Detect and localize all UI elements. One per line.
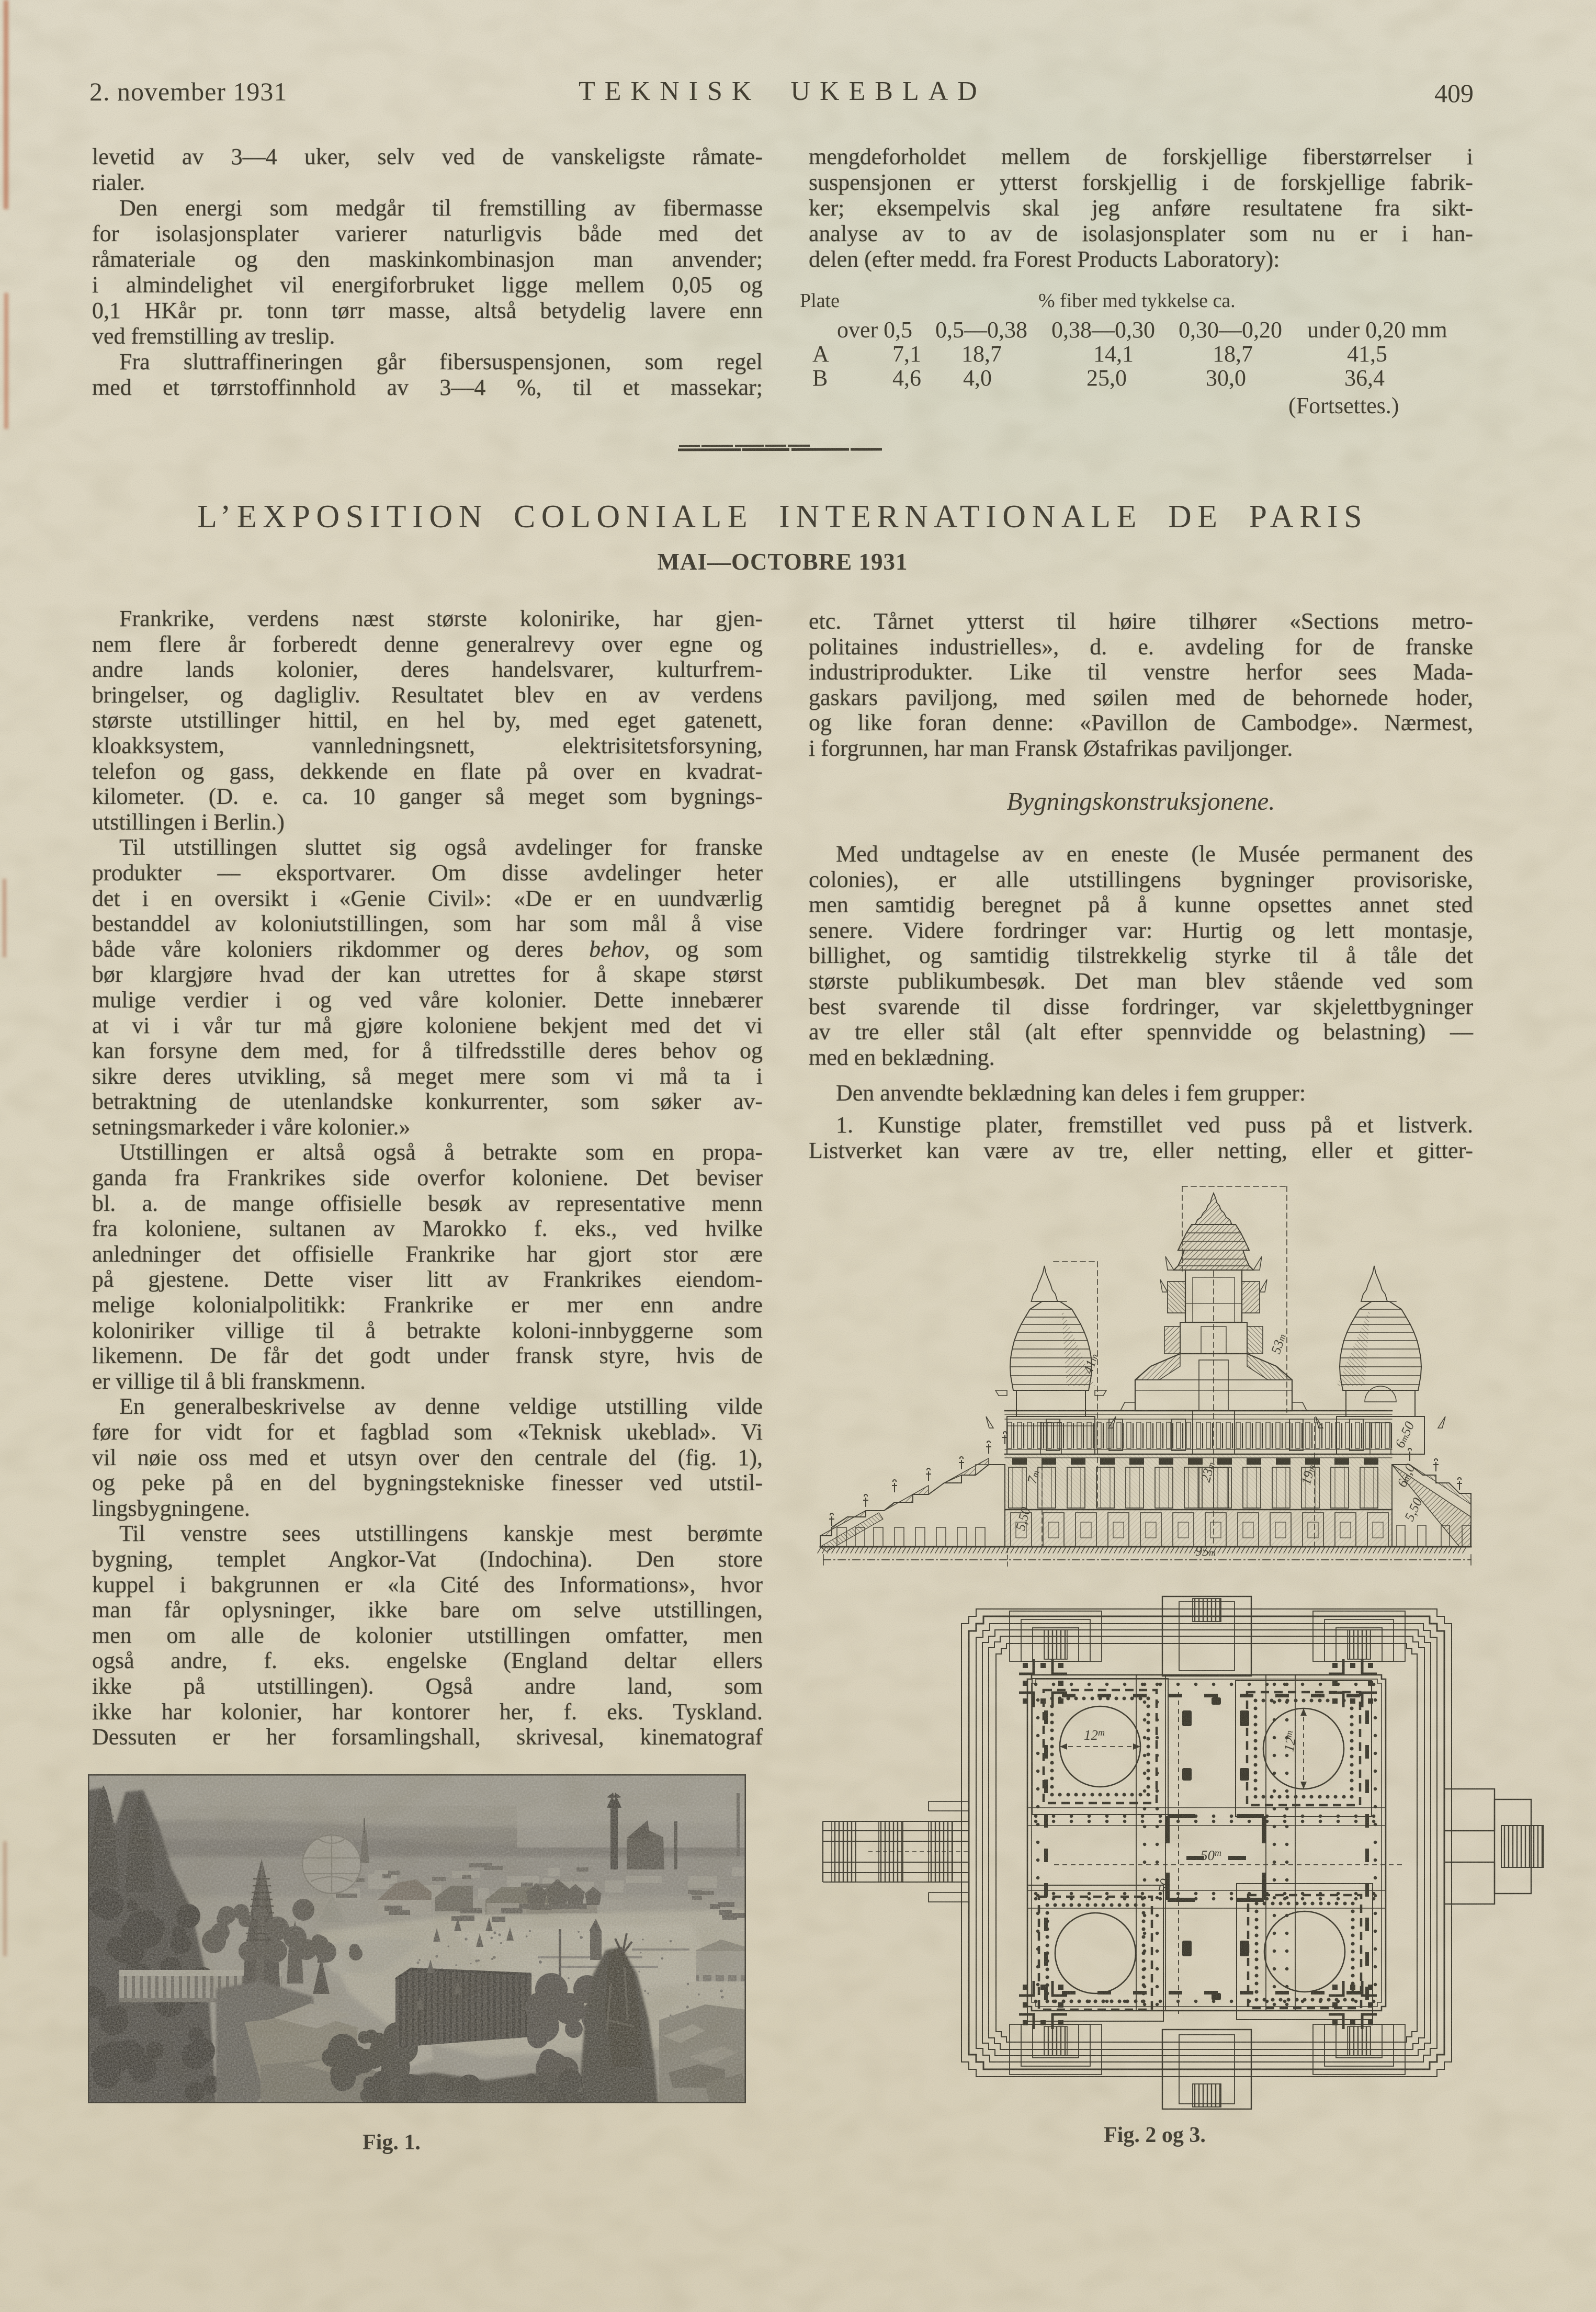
- svg-text:50m: 50m: [1201, 1848, 1221, 1863]
- svg-text:50: 50: [1155, 1877, 1173, 1894]
- svg-text:53m: 53m: [1268, 1332, 1289, 1356]
- svg-text:12m: 12m: [1084, 1727, 1105, 1743]
- svg-text:6m50: 6m50: [1392, 1419, 1417, 1450]
- svg-text:41m: 41m: [1080, 1352, 1101, 1376]
- svg-text:12m: 12m: [1281, 1729, 1299, 1753]
